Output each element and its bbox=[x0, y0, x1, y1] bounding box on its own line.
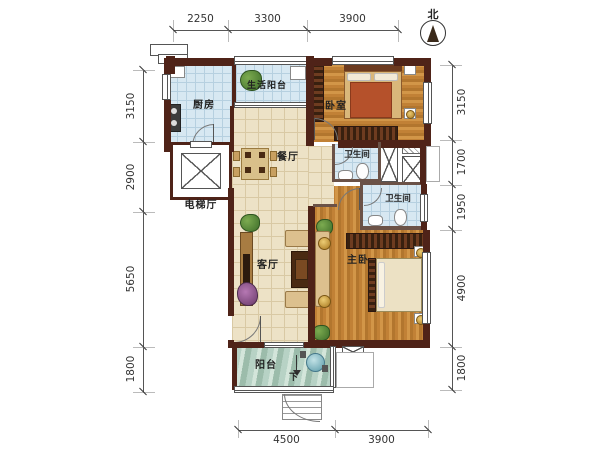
master-window bbox=[422, 252, 431, 324]
dining-plate bbox=[245, 167, 251, 173]
bedroom-side-window bbox=[423, 82, 432, 124]
dining-chair bbox=[233, 151, 240, 161]
wall-bedroom-bottom bbox=[306, 140, 314, 146]
dim-right-4: 4900 bbox=[456, 268, 468, 308]
dim-line-right bbox=[452, 65, 453, 390]
wall-bedroom-top bbox=[314, 58, 332, 66]
dim-left-3: 5650 bbox=[125, 259, 137, 299]
elevator-car bbox=[181, 153, 221, 189]
balcony-chair bbox=[300, 351, 306, 358]
bedroom-door-leaf bbox=[314, 118, 315, 140]
dim-right-5: 1800 bbox=[456, 348, 468, 388]
dim-line-bottom bbox=[238, 430, 428, 431]
wall-living-left bbox=[228, 188, 234, 316]
wall-balcony-left bbox=[232, 346, 237, 390]
kitchen-window bbox=[162, 74, 171, 100]
down-arrow-line bbox=[296, 355, 297, 371]
wall-bath2-left bbox=[360, 182, 363, 228]
bathroom2-label: 卫生间 bbox=[380, 194, 416, 205]
balcony-sill-window bbox=[234, 386, 334, 393]
bed-blanket bbox=[350, 82, 392, 118]
wall-kitchen-top bbox=[164, 58, 236, 66]
dim-right-3: 1950 bbox=[456, 187, 468, 227]
dining-chair bbox=[233, 167, 240, 177]
coffee-table-deco bbox=[295, 259, 308, 280]
dim-top-3: 3900 bbox=[330, 13, 375, 25]
entry-door-leaf bbox=[260, 316, 261, 343]
dining-label: 餐厅 bbox=[270, 152, 306, 163]
plant bbox=[240, 214, 260, 232]
living-label: 客厅 bbox=[250, 260, 286, 271]
floor-lamp bbox=[318, 237, 331, 250]
dim-bottom-1: 4500 bbox=[264, 434, 309, 446]
tv bbox=[243, 254, 250, 284]
flower-pot bbox=[237, 282, 258, 306]
bedside-lamp bbox=[406, 110, 415, 119]
elevator-hall-label: 电梯厅 bbox=[183, 200, 219, 211]
master-bed-headboard bbox=[368, 258, 376, 312]
service-balcony-window bbox=[234, 56, 308, 65]
balcony-label: 阳台 bbox=[248, 360, 284, 371]
wall-bedroom-left bbox=[306, 56, 314, 146]
dim-right-2: 1700 bbox=[456, 142, 468, 182]
bath2-window bbox=[420, 194, 428, 222]
dim-right-1: 3150 bbox=[456, 82, 468, 122]
compass-needle-icon bbox=[427, 25, 439, 42]
bed-pillow bbox=[347, 73, 371, 81]
bathroom1-label: 卫生间 bbox=[339, 150, 375, 161]
balcony-right-window bbox=[330, 346, 336, 388]
bathroom-sink bbox=[368, 215, 383, 226]
dim-line-left bbox=[143, 70, 144, 392]
wall-corridor-bottom bbox=[313, 204, 337, 207]
dim-left-2: 2900 bbox=[125, 157, 137, 197]
master-bedroom-label: 主卧 bbox=[340, 255, 376, 266]
wall-kitchen-balcony-divider bbox=[232, 64, 236, 106]
wall-balcony-living-b bbox=[304, 342, 330, 348]
toilet bbox=[394, 209, 407, 226]
wall-living-master-divider bbox=[308, 206, 315, 342]
bedroom-label: 卧室 bbox=[318, 101, 354, 112]
dim-bottom-2: 3900 bbox=[359, 434, 404, 446]
master-bed-pillows bbox=[378, 262, 385, 308]
dim-line-top bbox=[173, 30, 398, 31]
north-label: 北 bbox=[424, 6, 442, 22]
kitchen-label: 厨房 bbox=[186, 100, 222, 111]
elevator-notch bbox=[190, 141, 212, 148]
washing-machine bbox=[290, 66, 306, 80]
wall-kitchen-left bbox=[164, 58, 171, 152]
floor-lamp bbox=[318, 295, 331, 308]
service-balcony-glass-door bbox=[234, 102, 308, 108]
floorplan-canvas: 厨房 生活阳台 卧室 餐厅 卫生间 卫生间 电梯厅 客厅 主卧 阳台 下 北 2… bbox=[0, 0, 600, 450]
service-balcony-label: 生活阳台 bbox=[237, 81, 297, 92]
exterior-platform bbox=[336, 352, 374, 388]
dining-plate bbox=[259, 152, 265, 158]
master-door-leaf bbox=[359, 188, 360, 210]
balcony-chair bbox=[322, 365, 328, 372]
stove-burner bbox=[171, 108, 177, 114]
dining-plate bbox=[259, 167, 265, 173]
dim-left-1: 3150 bbox=[125, 86, 137, 126]
bedroom-wardrobe bbox=[334, 126, 398, 141]
dim-top-2: 3300 bbox=[245, 13, 290, 25]
dining-plate bbox=[245, 152, 251, 158]
stove-burner bbox=[171, 120, 177, 126]
balcony-glass-door bbox=[264, 342, 304, 348]
dining-chair bbox=[270, 167, 277, 177]
stairs-down-label: 下 bbox=[288, 373, 300, 384]
wall-bedroom-right bbox=[424, 58, 431, 82]
master-wardrobe bbox=[346, 233, 424, 249]
dim-top-1: 2250 bbox=[178, 13, 223, 25]
dim-left-4: 1800 bbox=[125, 349, 137, 389]
bed-pillow bbox=[374, 73, 398, 81]
exterior-ledge bbox=[426, 146, 440, 182]
wall-bath2-top bbox=[360, 182, 424, 185]
wall-bath1-right bbox=[378, 142, 381, 182]
wall-bath2-bottom bbox=[360, 226, 426, 230]
bedroom-window bbox=[332, 56, 394, 65]
corridor-floor bbox=[308, 146, 334, 206]
toilet bbox=[356, 163, 369, 180]
duct-shaft bbox=[380, 142, 398, 182]
